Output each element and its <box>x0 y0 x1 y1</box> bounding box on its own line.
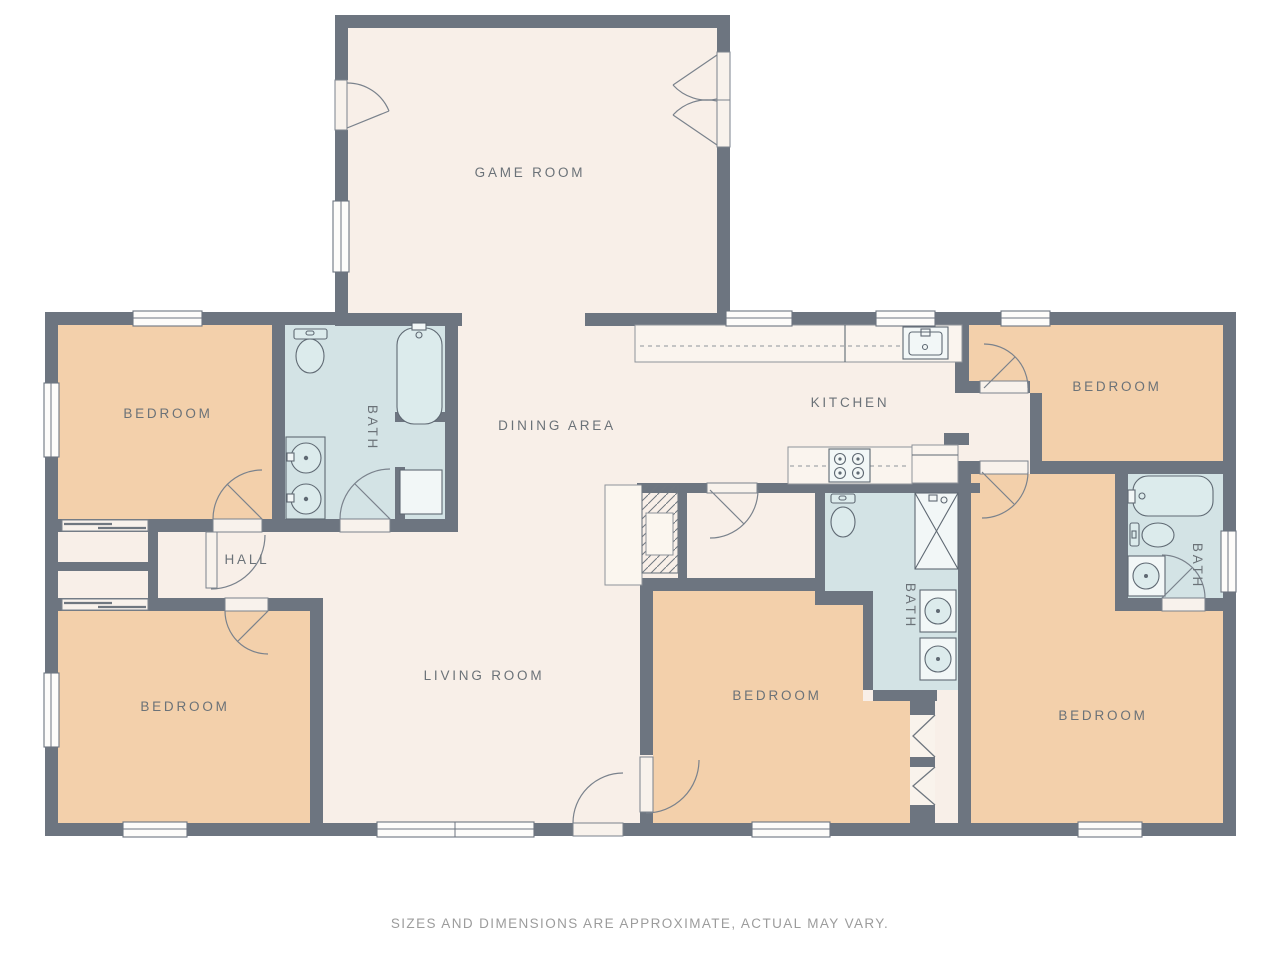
closet-strip-floor <box>935 690 958 823</box>
window <box>726 311 792 326</box>
room-label-bath-right: BATH <box>1190 543 1205 589</box>
room-label-living-room: LIVING ROOM <box>424 668 545 683</box>
bedroom-bottom-right-floor-upper <box>971 474 1115 611</box>
shower-fixture <box>915 493 958 569</box>
window <box>752 822 830 837</box>
window <box>1078 822 1142 837</box>
stove-fixture <box>829 449 870 482</box>
firebox <box>646 513 673 555</box>
bedroom-bottom-left-floor <box>57 611 310 823</box>
floor-plan-drawing: GAME ROOM BEDROOM BATH DINING AREA KITCH… <box>0 0 1280 960</box>
sink-fixture <box>1128 556 1165 596</box>
sliding-closet-door <box>62 599 148 610</box>
room-label-bedroom-bottom-left: BEDROOM <box>140 699 229 714</box>
floor-plan-page: GAME ROOM BEDROOM BATH DINING AREA KITCH… <box>0 0 1280 960</box>
vestibule-floor <box>969 393 1030 461</box>
disclaimer-text: SIZES AND DIMENSIONS ARE APPROXIMATE, AC… <box>0 916 1280 931</box>
room-label-bath-top-left: BATH <box>365 405 380 451</box>
room-label-bedroom-top-right: BEDROOM <box>1072 379 1161 394</box>
bedroom-top-left-floor <box>57 324 273 519</box>
toilet-fixture <box>1130 523 1174 547</box>
fireplace <box>605 485 678 585</box>
window <box>44 673 59 747</box>
window <box>133 311 202 326</box>
hearth-cabinet <box>605 485 642 585</box>
bedroom-bottom-middle-floor <box>653 591 863 823</box>
window <box>377 822 534 837</box>
toilet-fixture <box>831 494 855 537</box>
room-label-bedroom-bottom-right: BEDROOM <box>1058 708 1147 723</box>
shower-niche <box>400 470 442 514</box>
kitchen-sink-fixture <box>903 327 948 359</box>
window <box>123 822 187 837</box>
window <box>333 201 349 272</box>
bathtub-fixture <box>1128 476 1213 516</box>
room-label-kitchen: KITCHEN <box>811 395 890 410</box>
bathtub-fixture <box>397 323 442 424</box>
room-label-hall: HALL <box>225 552 270 567</box>
room-label-bedroom-top-left: BEDROOM <box>123 406 212 421</box>
sliding-closet-door <box>62 520 148 531</box>
window <box>1001 311 1050 326</box>
room-label-bedroom-bottom-middle: BEDROOM <box>732 688 821 703</box>
room-label-game-room: GAME ROOM <box>475 165 586 180</box>
window <box>876 311 935 326</box>
window <box>44 383 59 457</box>
corner-cabinet <box>912 445 958 483</box>
room-label-dining-area: DINING AREA <box>498 418 616 433</box>
room-label-bath-middle: BATH <box>903 583 918 629</box>
window <box>1221 531 1236 592</box>
bedroom-bottom-middle-closet-floor <box>863 701 910 823</box>
